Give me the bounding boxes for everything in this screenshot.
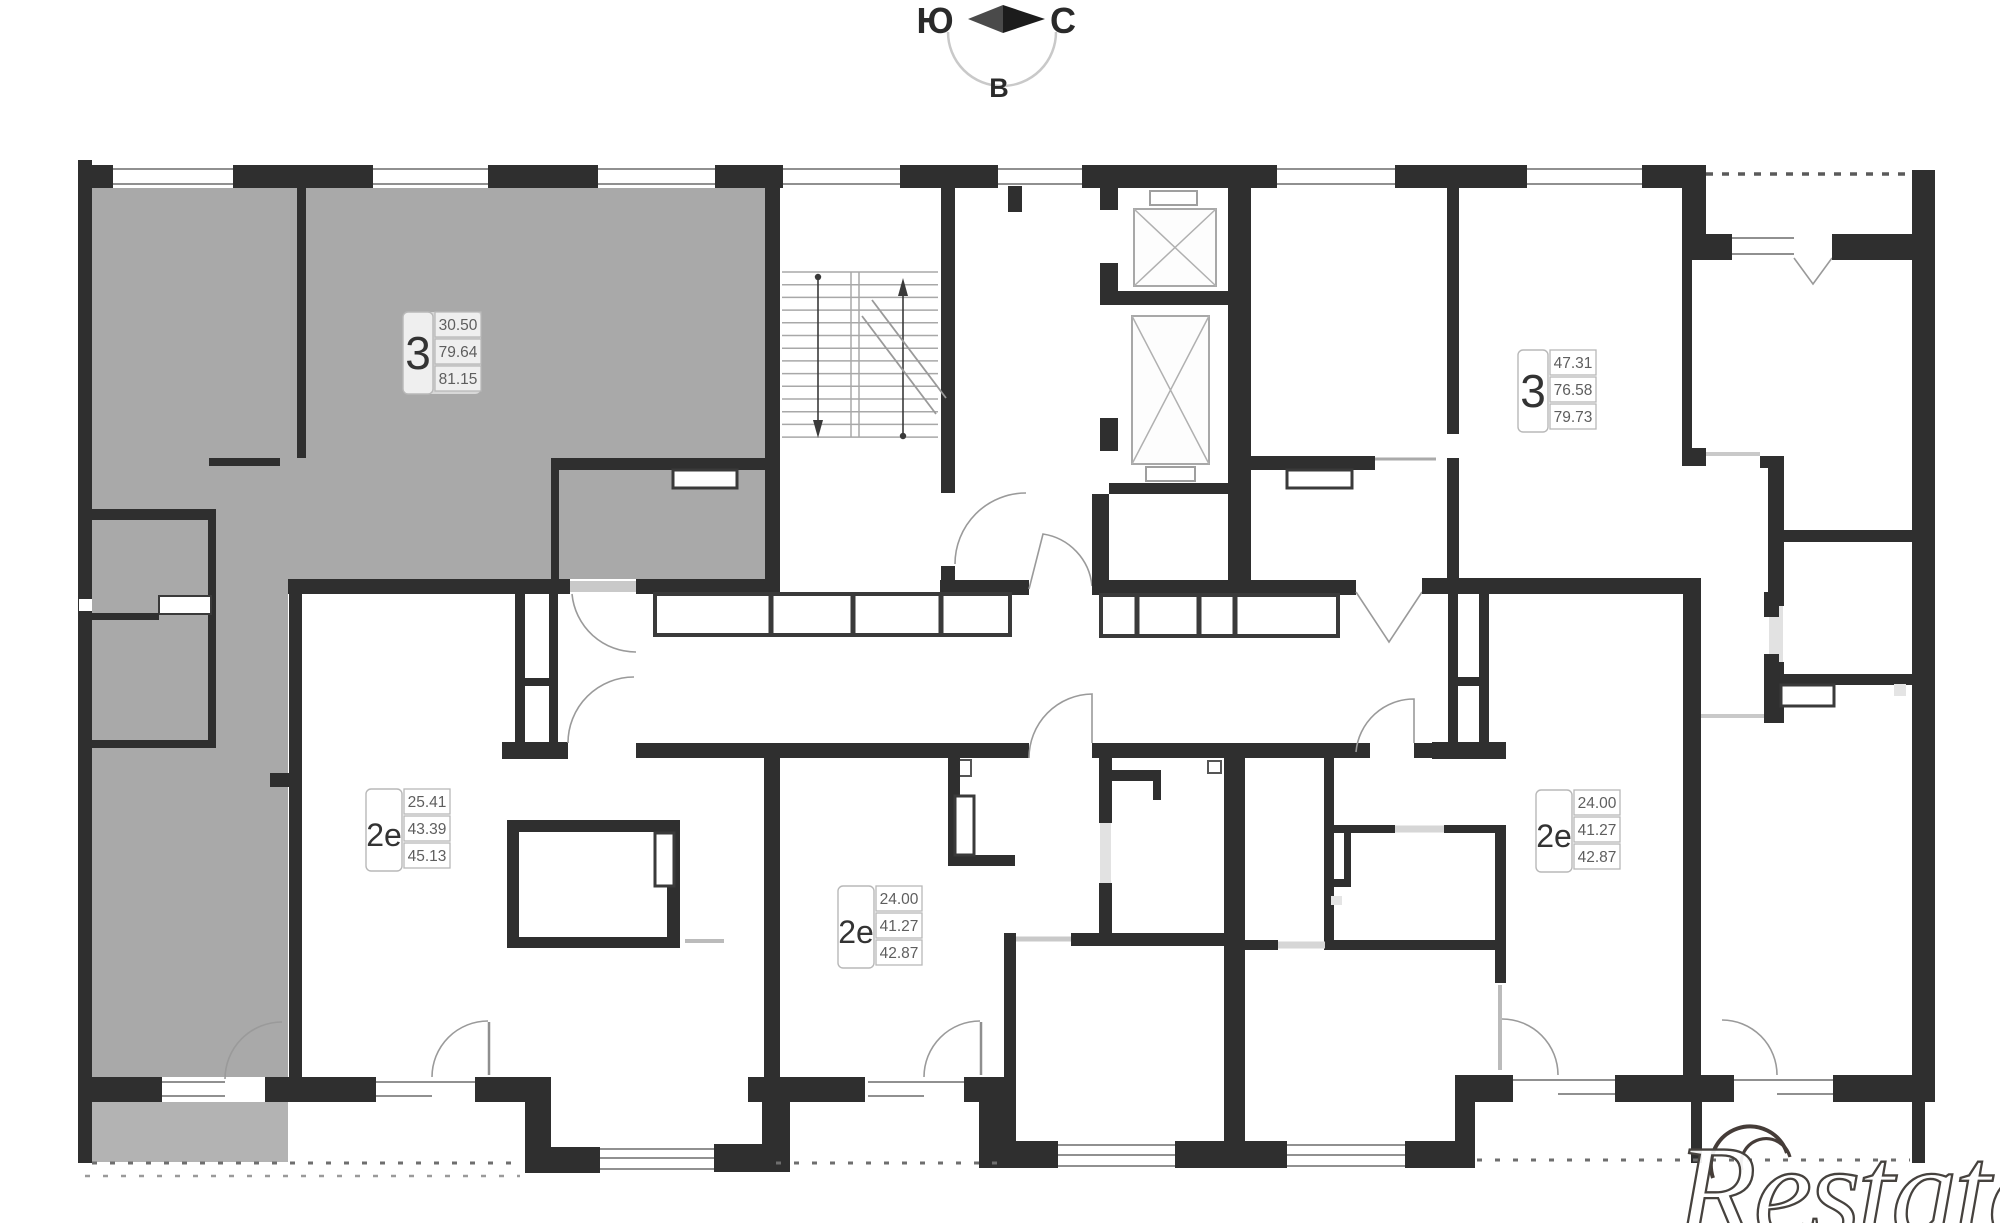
svg-text:42.87: 42.87: [1578, 849, 1617, 866]
svg-text:42.87: 42.87: [880, 945, 919, 962]
svg-text:30.50: 30.50: [439, 317, 478, 334]
svg-text:Restate: Restate: [1675, 1118, 2000, 1223]
svg-text:43.39: 43.39: [408, 821, 447, 838]
svg-text:2е: 2е: [838, 914, 874, 950]
svg-text:24.00: 24.00: [1578, 795, 1617, 812]
svg-text:79.64: 79.64: [439, 344, 478, 361]
svg-text:2е: 2е: [366, 817, 402, 853]
svg-text:3: 3: [1520, 365, 1546, 417]
svg-text:45.13: 45.13: [408, 848, 447, 865]
svg-text:24.00: 24.00: [880, 891, 919, 908]
svg-text:76.58: 76.58: [1554, 382, 1593, 399]
svg-text:41.27: 41.27: [1578, 822, 1617, 839]
svg-text:2е: 2е: [1536, 818, 1572, 854]
svg-text:3: 3: [405, 327, 431, 379]
svg-text:41.27: 41.27: [880, 918, 919, 935]
svg-text:47.31: 47.31: [1554, 355, 1593, 372]
svg-text:79.73: 79.73: [1554, 409, 1593, 426]
svg-text:25.41: 25.41: [408, 794, 447, 811]
svg-text:81.15: 81.15: [439, 371, 478, 388]
svg-text:С: С: [1050, 0, 1076, 41]
svg-text:В: В: [989, 73, 1009, 103]
